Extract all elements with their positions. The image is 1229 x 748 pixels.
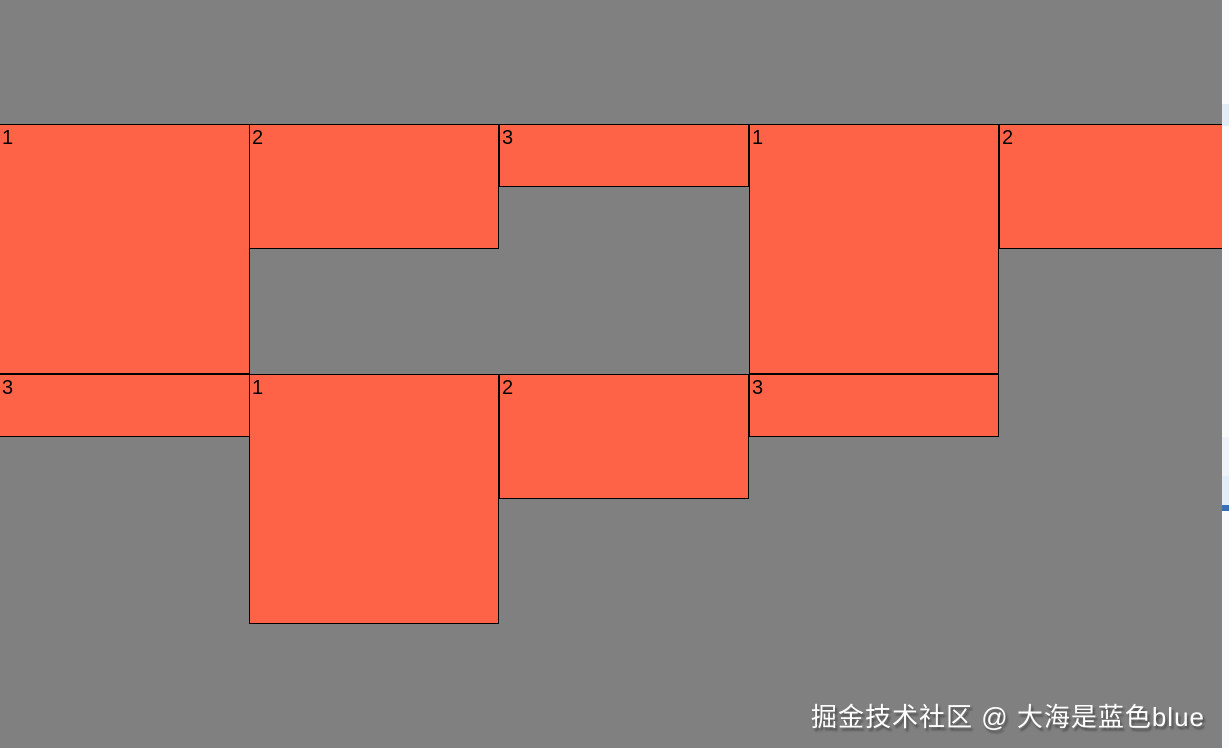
page-canvas: 1 2 3 1 2 3 1 2 3 掘金技术社区 @ 大海是蓝色blue (0, 0, 1229, 748)
demo-box: 3 (749, 374, 999, 437)
scrollbar-marker (1222, 437, 1229, 476)
scrollbar-thumb-accent[interactable] (1222, 505, 1229, 511)
scrollbar-marker (1222, 104, 1229, 126)
scrollbar-track[interactable] (1222, 0, 1229, 748)
demo-box: 3 (499, 124, 749, 187)
demo-box: 2 (249, 124, 499, 249)
demo-box: 2 (999, 124, 1229, 249)
demo-box: 2 (499, 374, 749, 499)
demo-box: 3 (0, 374, 250, 437)
demo-box: 1 (249, 374, 499, 624)
demo-box: 1 (749, 124, 999, 374)
demo-box: 1 (0, 124, 250, 374)
juejin-watermark: 掘金技术社区 @ 大海是蓝色blue (811, 697, 1205, 734)
scrollbar-marker (1222, 476, 1229, 505)
